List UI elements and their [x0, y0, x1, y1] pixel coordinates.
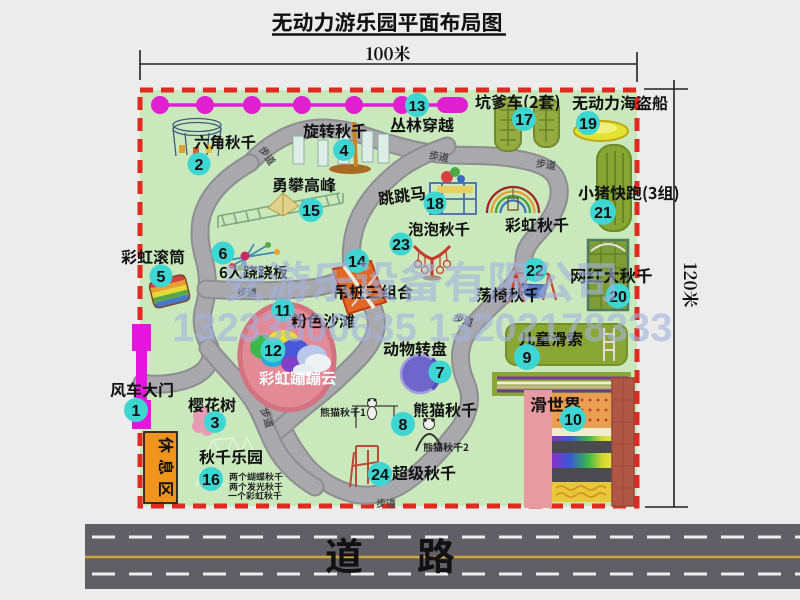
- svg-text:21: 21: [594, 205, 612, 222]
- svg-text:16: 16: [202, 472, 220, 489]
- svg-text:6: 6: [219, 246, 228, 263]
- svg-text:2: 2: [195, 157, 204, 174]
- svg-text:7: 7: [436, 365, 445, 382]
- svg-text:23: 23: [392, 237, 410, 254]
- svg-text:1: 1: [132, 403, 141, 420]
- svg-text:15: 15: [302, 203, 320, 220]
- svg-text:24: 24: [371, 467, 389, 484]
- svg-text:13233800635 13202178333: 13233800635 13202178333: [172, 306, 673, 350]
- svg-text:9: 9: [523, 350, 532, 367]
- svg-text:4: 4: [340, 143, 349, 160]
- svg-text:19: 19: [579, 116, 597, 133]
- svg-text:10: 10: [564, 412, 582, 429]
- svg-text:17: 17: [515, 112, 533, 129]
- svg-text:8: 8: [399, 417, 408, 434]
- svg-text:3: 3: [211, 415, 220, 432]
- svg-text:5: 5: [157, 269, 166, 286]
- svg-text:18: 18: [426, 196, 444, 213]
- svg-text:13: 13: [409, 98, 426, 115]
